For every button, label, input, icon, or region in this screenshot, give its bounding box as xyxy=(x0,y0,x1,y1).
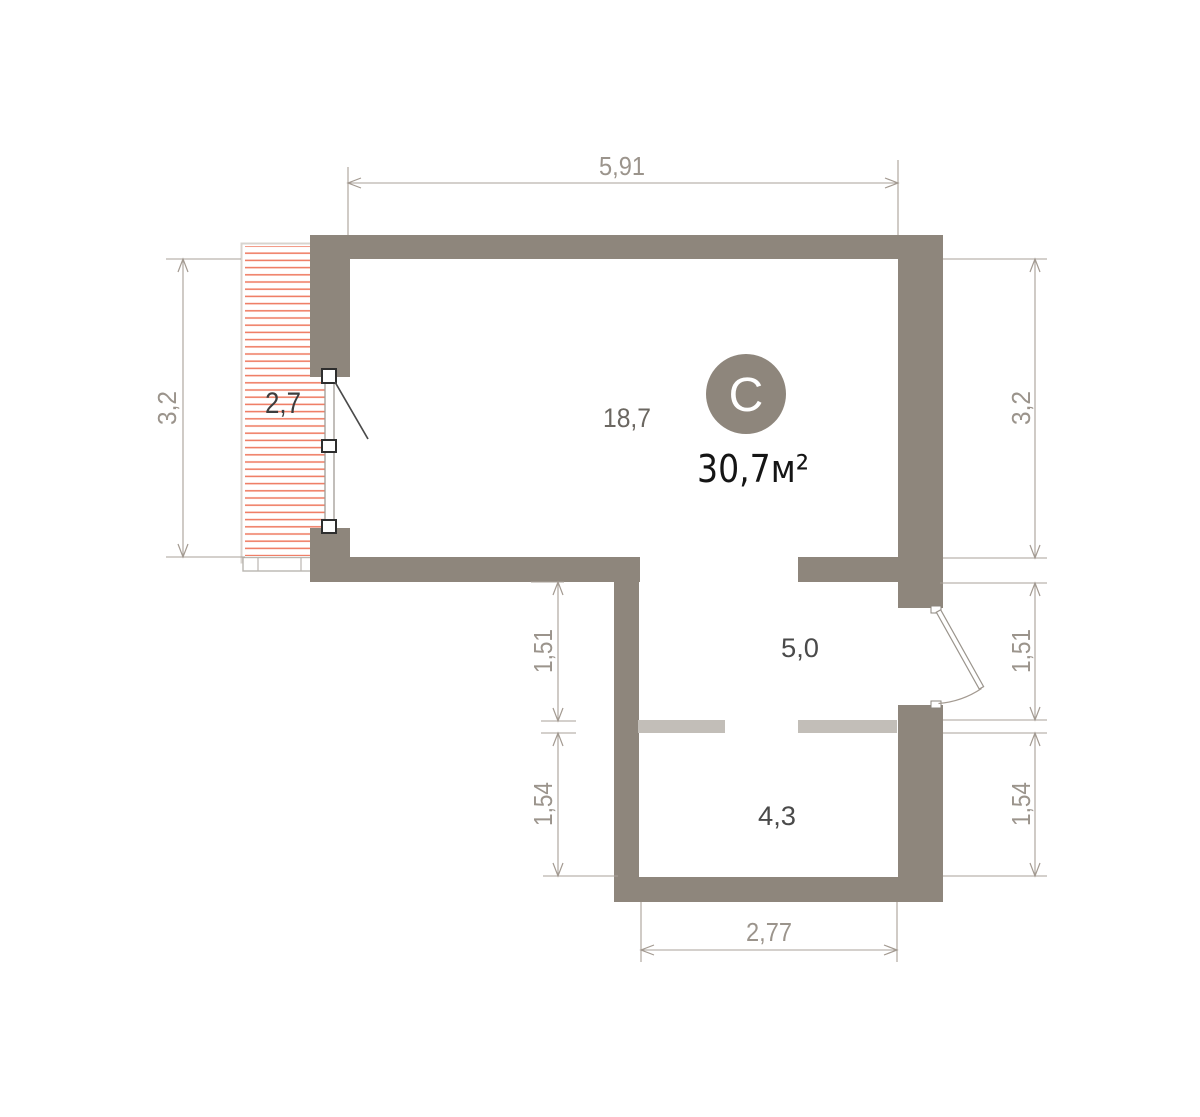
entry-door-jamb-bottom xyxy=(931,701,941,708)
wall-left-column-upper xyxy=(310,237,350,377)
partition-left xyxy=(638,720,725,733)
wall-living-south xyxy=(348,557,640,582)
dim-left-height: 3,2 xyxy=(152,259,245,557)
balcony-rail xyxy=(243,558,313,572)
wall-hallway-stub xyxy=(798,557,898,582)
dim-label-right-mid: 1,51 xyxy=(1006,629,1036,673)
partitions xyxy=(638,720,897,733)
room-label-bathroom: 4,3 xyxy=(758,801,796,831)
balcony-door-glazing xyxy=(325,383,334,441)
dim-label-top-width: 5,91 xyxy=(599,151,645,181)
total-area-label: 30,7м² xyxy=(697,447,809,491)
dim-right-mid: 1,51 xyxy=(940,583,1047,720)
unit-type-letter: С xyxy=(729,369,764,422)
dim-left-lower: 1,54 xyxy=(528,733,618,876)
wall-left-column-lower xyxy=(310,528,350,582)
dim-label-left-height: 3,2 xyxy=(152,391,182,425)
dim-label-left-mid: 1,51 xyxy=(528,629,558,673)
room-label-balcony: 2,7 xyxy=(265,387,301,420)
dim-left-mid: 1,51 xyxy=(528,582,576,721)
dim-bottom-width: 2,77 xyxy=(641,902,897,962)
unit-info: С 30,7м² xyxy=(697,354,809,491)
wall-right-upper xyxy=(898,259,943,608)
partition-right xyxy=(798,720,897,733)
dim-right-height: 3,2 xyxy=(943,259,1047,558)
floor-plan-page: 5,91 3,2 3,2 1,51 1,54 xyxy=(0,0,1200,1117)
balcony-window-glazing xyxy=(325,447,334,523)
wall-bottom xyxy=(614,877,943,902)
wall-top xyxy=(310,235,943,259)
dim-label-right-lower: 1,54 xyxy=(1006,782,1036,826)
dim-top-width: 5,91 xyxy=(348,151,898,235)
balcony-door-leaf xyxy=(335,382,368,439)
entry-door-swing-arc xyxy=(939,689,982,704)
dim-label-bottom-width: 2,77 xyxy=(746,917,792,947)
window-frame-bottom xyxy=(322,520,336,533)
floor-plan-svg: 5,91 3,2 3,2 1,51 1,54 xyxy=(0,0,1200,1117)
room-label-hallway: 5,0 xyxy=(781,633,819,663)
entry-door xyxy=(931,606,984,708)
room-label-living: 18,7 xyxy=(603,403,651,433)
balcony-window-block xyxy=(322,369,368,533)
dim-label-right-height: 3,2 xyxy=(1006,391,1036,425)
entry-door-leaf xyxy=(936,610,983,689)
walls xyxy=(310,235,943,902)
window-frame-top xyxy=(322,369,336,383)
wall-bathroom-left xyxy=(614,582,639,902)
window-frame-middle xyxy=(322,440,336,452)
wall-right-lower xyxy=(898,705,943,902)
dim-right-lower: 1,54 xyxy=(943,733,1047,876)
dim-label-left-lower: 1,54 xyxy=(528,782,558,826)
